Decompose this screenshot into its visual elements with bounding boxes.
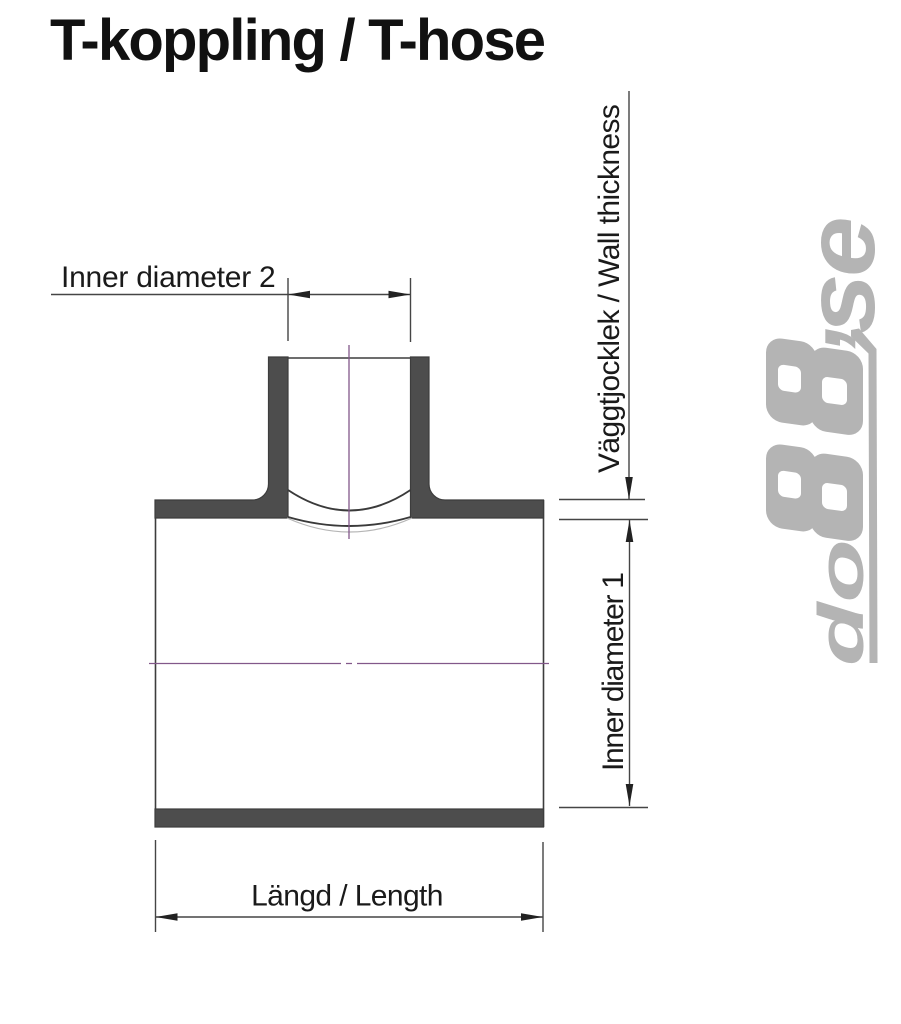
svg-text:se: se (785, 219, 895, 334)
svg-text:Väggtjocklek / Wall thickness: Väggtjocklek / Wall thickness (593, 105, 626, 473)
svg-text:Inner diameter 2: Inner diameter 2 (61, 261, 275, 294)
svg-text:do: do (806, 539, 877, 666)
svg-text:Inner diameter 1: Inner diameter 1 (597, 573, 630, 771)
svg-text:T-koppling / T-hose: T-koppling / T-hose (50, 8, 545, 73)
svg-text:Längd / Length: Längd / Length (251, 880, 443, 913)
